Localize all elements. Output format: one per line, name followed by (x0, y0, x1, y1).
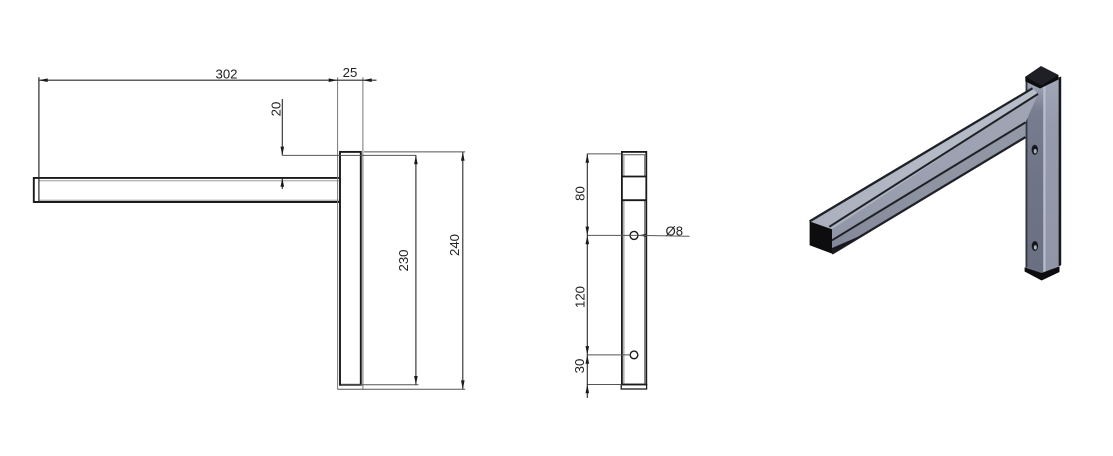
svg-text:230: 230 (396, 249, 411, 271)
svg-text:Ø8: Ø8 (666, 224, 684, 239)
svg-text:25: 25 (343, 65, 358, 80)
svg-text:30: 30 (572, 359, 587, 374)
svg-text:240: 240 (447, 234, 462, 256)
svg-text:302: 302 (215, 67, 237, 82)
svg-text:120: 120 (572, 286, 587, 308)
svg-text:20: 20 (268, 102, 283, 117)
svg-text:80: 80 (573, 186, 588, 201)
